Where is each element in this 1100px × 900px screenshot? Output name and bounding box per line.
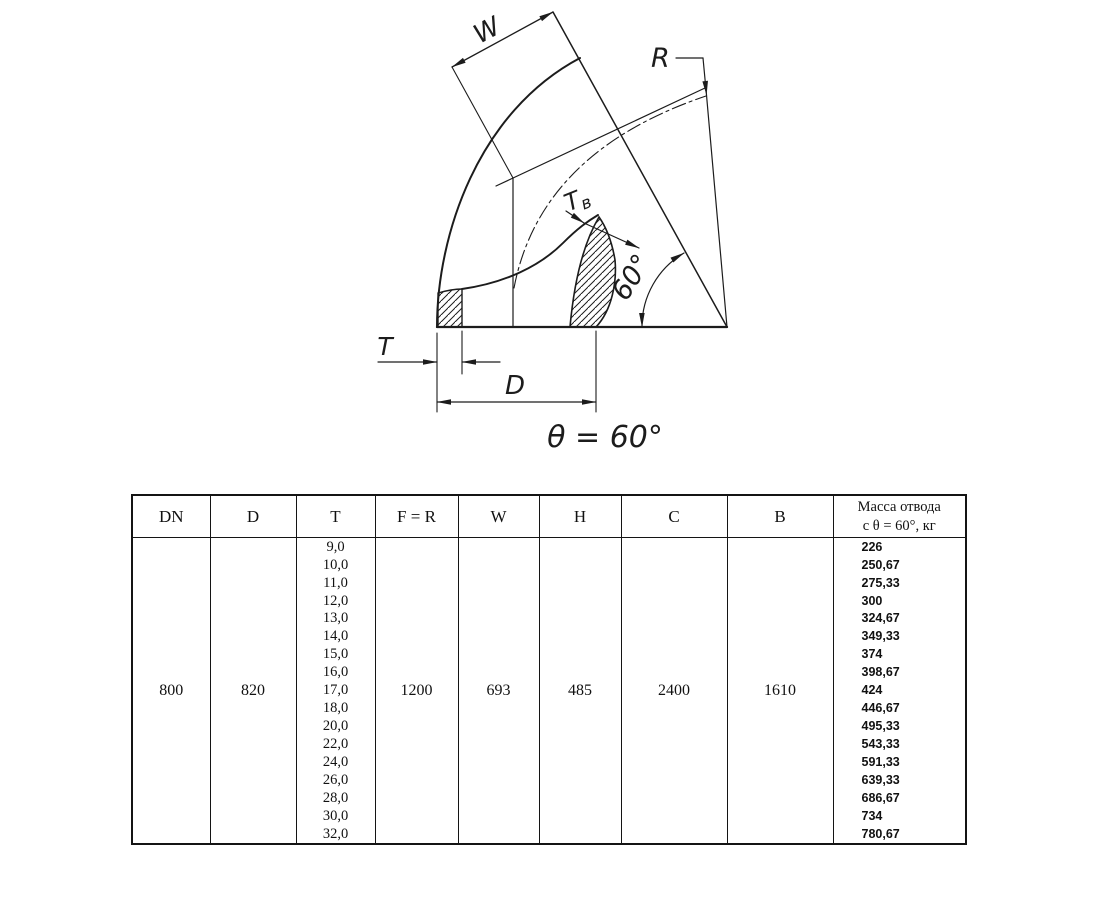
table-cell-value: 9,0	[297, 540, 375, 555]
table-cell-value: 20,0	[297, 719, 375, 734]
wall-section-miter	[570, 217, 615, 327]
table-cell-value: 15,0	[297, 647, 375, 662]
theta-caption: θ = 60°	[547, 420, 663, 455]
page: W R Tв 60° T D θ = 60° DN D T F = R W H	[0, 0, 1100, 900]
table-cell-value: 10,0	[297, 558, 375, 573]
table-cell-value: 591,33	[862, 756, 900, 769]
table-cell-value: 734	[862, 810, 883, 823]
table-cell-value: 14,0	[297, 629, 375, 644]
col-header-t: T	[296, 495, 375, 538]
col-header-dn: DN	[132, 495, 210, 538]
dim-label-w: W	[469, 11, 507, 50]
cell-c: 2400	[621, 538, 727, 845]
header-row: DN D T F = R W H C B Масса отвода с θ = …	[132, 495, 966, 538]
table-cell-value: 495,33	[862, 720, 900, 733]
dim-label-r: R	[651, 43, 670, 74]
cell-h: 485	[539, 538, 621, 845]
table-cell-value: 686,67	[862, 792, 900, 805]
cell-dn: 800	[132, 538, 210, 845]
table-cell-value: 22,0	[297, 737, 375, 752]
table-cell-value: 374	[862, 648, 883, 661]
table-cell-value: 275,33	[862, 577, 900, 590]
col-header-w: W	[458, 495, 539, 538]
elbow-drawing: W R Tв 60° T D θ = 60°	[0, 0, 1100, 470]
table-cell-value: 12,0	[297, 594, 375, 609]
table-cell-value: 446,67	[862, 702, 900, 715]
table-cell-value: 30,0	[297, 809, 375, 824]
dim-label-t: T	[377, 332, 394, 361]
table-cell-value: 32,0	[297, 827, 375, 842]
table-cell-value: 300	[862, 595, 883, 608]
dim-label-tv: Tв	[560, 182, 595, 220]
table-cell-value: 780,67	[862, 828, 900, 841]
table-cell-value: 16,0	[297, 665, 375, 680]
wall-section-left	[438, 289, 462, 327]
table-cell-value: 17,0	[297, 683, 375, 698]
table-cell-value: 11,0	[297, 576, 375, 591]
outer-arc	[437, 58, 580, 327]
table-cell-value: 398,67	[862, 666, 900, 679]
cell-fr: 1200	[375, 538, 458, 845]
table-cell-value: 226	[862, 541, 883, 554]
table-cell-value: 250,67	[862, 559, 900, 572]
col-header-b: B	[727, 495, 833, 538]
table-cell-value: 324,67	[862, 612, 900, 625]
table-cell-value: 18,0	[297, 701, 375, 716]
mass-values-list: 226250,67275,33300324,67349,33374398,674…	[834, 538, 966, 843]
table-cell-value: 543,33	[862, 738, 900, 751]
col-header-d: D	[210, 495, 296, 538]
table-cell-value: 349,33	[862, 630, 900, 643]
data-row: 800 820 9,010,011,012,013,014,015,016,01…	[132, 538, 966, 845]
r-leader-arrow	[703, 58, 707, 95]
cell-d: 820	[210, 538, 296, 845]
table-cell-value: 26,0	[297, 773, 375, 788]
t-values-list: 9,010,011,012,013,014,015,016,017,018,02…	[297, 538, 375, 843]
face-line	[496, 88, 705, 186]
cell-b: 1610	[727, 538, 833, 845]
col-header-mass: Масса отвода с θ = 60°, кг	[833, 495, 966, 538]
col-header-h: H	[539, 495, 621, 538]
mass-header-line1: Масса отвода	[834, 498, 966, 516]
table-cell-value: 13,0	[297, 611, 375, 626]
table-cell-value: 24,0	[297, 755, 375, 770]
cell-w: 693	[458, 538, 539, 845]
mass-header-line2: с θ = 60°, кг	[834, 517, 966, 535]
dimensions-table: DN D T F = R W H C B Масса отвода с θ = …	[131, 494, 967, 845]
col-header-c: C	[621, 495, 727, 538]
table-cell-value: 424	[862, 684, 883, 697]
dim-label-d: D	[505, 371, 525, 401]
table-cell-value: 639,33	[862, 774, 900, 787]
r-vertex-line	[707, 95, 728, 327]
col-header-fr: F = R	[375, 495, 458, 538]
cell-mass: 226250,67275,33300324,67349,33374398,674…	[833, 538, 966, 845]
cell-t: 9,010,011,012,013,014,015,016,017,018,02…	[296, 538, 375, 845]
table-cell-value: 28,0	[297, 791, 375, 806]
